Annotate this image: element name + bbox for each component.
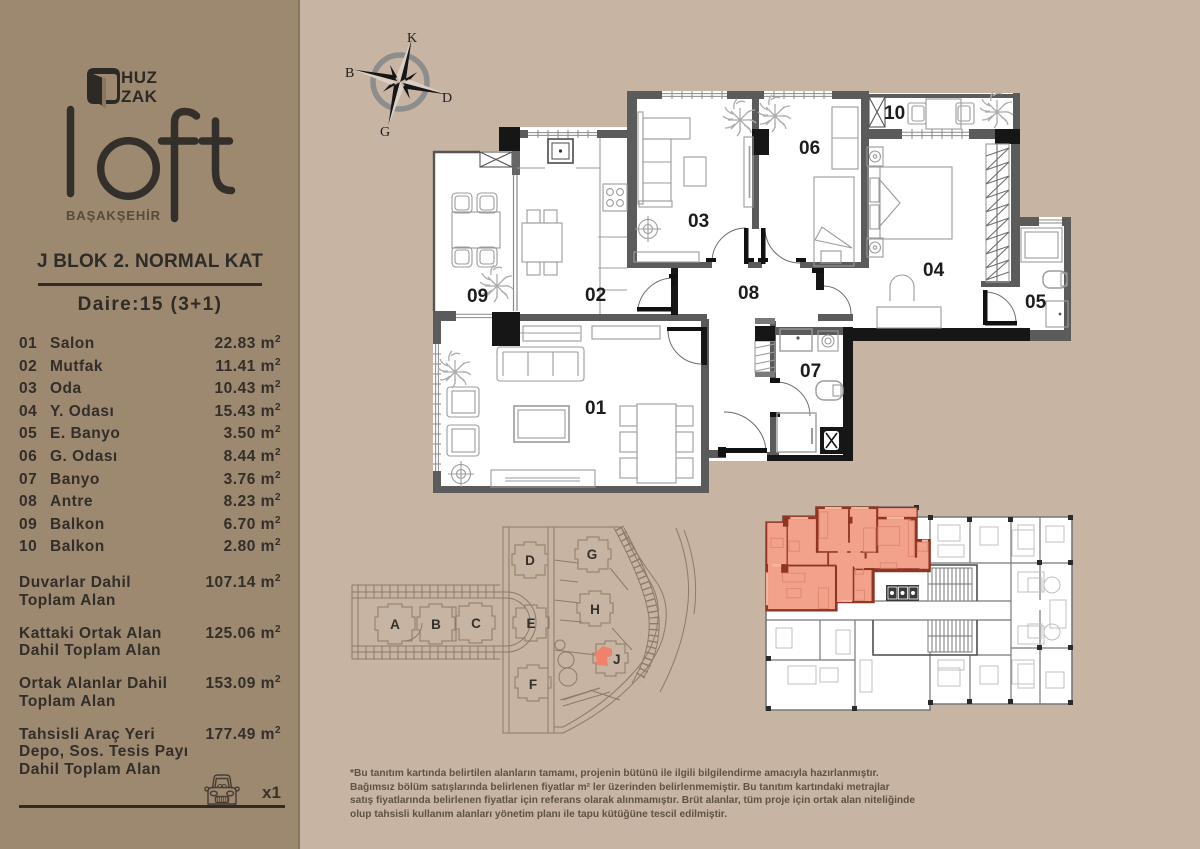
svg-text:10: 10 [884, 103, 905, 124]
svg-text:09: 09 [467, 286, 488, 307]
svg-text:F: F [529, 677, 537, 692]
svg-text:06: 06 [799, 138, 820, 159]
svg-text:02: 02 [585, 285, 606, 306]
svg-text:J: J [613, 652, 621, 667]
svg-text:D: D [442, 91, 452, 106]
svg-text:K: K [407, 31, 417, 46]
svg-text:B: B [345, 66, 354, 81]
svg-text:A: A [390, 617, 400, 632]
svg-text:B: B [431, 617, 441, 632]
svg-text:H: H [590, 602, 600, 617]
svg-text:08: 08 [738, 283, 759, 304]
svg-text:05: 05 [1025, 292, 1047, 313]
svg-text:G: G [380, 125, 390, 140]
svg-text:C: C [471, 616, 481, 631]
svg-text:03: 03 [688, 211, 709, 232]
svg-text:01: 01 [585, 398, 607, 419]
svg-text:G: G [587, 547, 598, 562]
svg-text:07: 07 [800, 361, 821, 382]
svg-text:04: 04 [923, 260, 945, 281]
svg-text:D: D [525, 553, 535, 568]
svg-text:E: E [526, 616, 535, 631]
